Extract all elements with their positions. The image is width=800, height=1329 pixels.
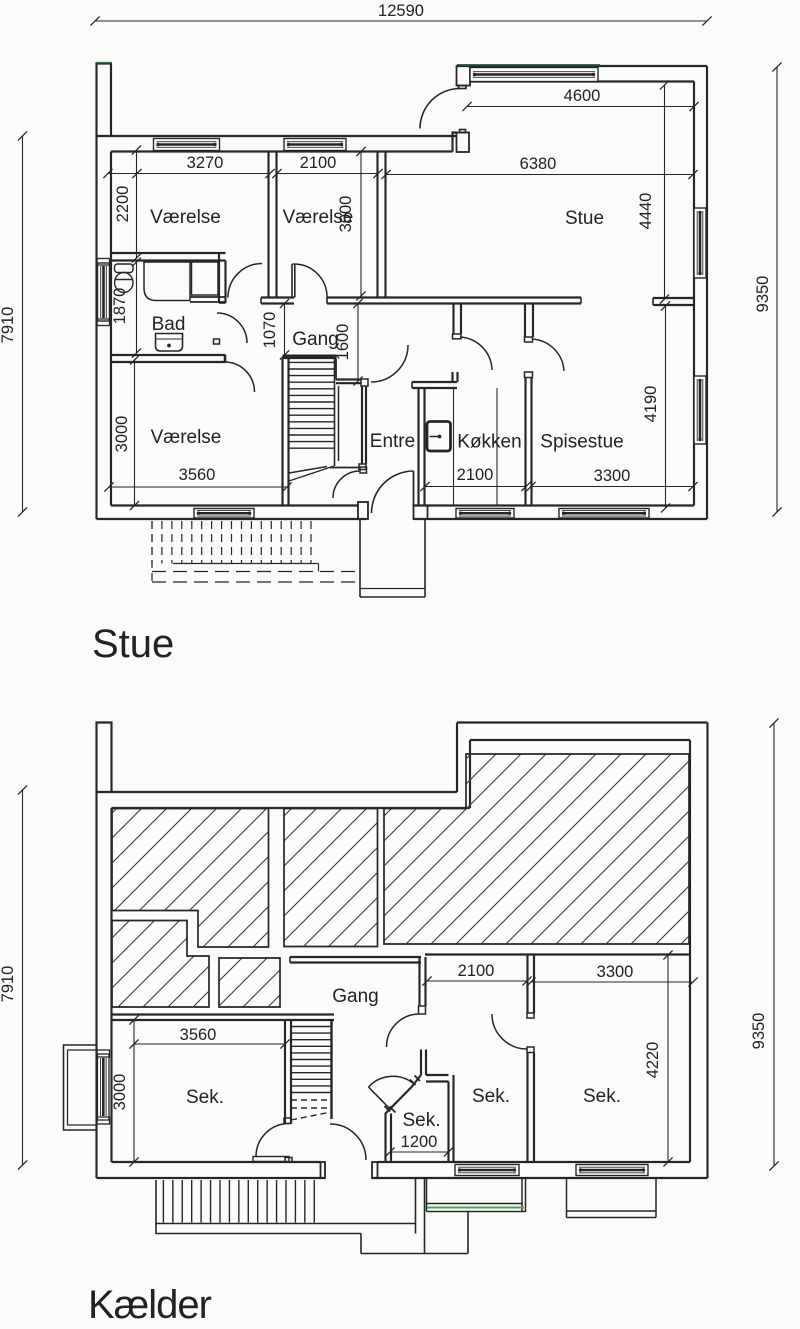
svg-text:Sek.: Sek. [583,1086,621,1107]
svg-text:Stue: Stue [565,208,604,229]
svg-text:9350: 9350 [754,276,772,313]
svg-text:Gang: Gang [292,329,338,350]
svg-text:Værelse: Værelse [283,207,354,228]
svg-text:Sek.: Sek. [186,1087,224,1108]
svg-text:7910: 7910 [0,966,17,1003]
svg-text:Bad: Bad [152,314,186,335]
svg-text:6380: 6380 [520,155,557,173]
svg-text:1200: 1200 [401,1133,438,1151]
svg-text:Gang: Gang [332,986,378,1007]
svg-text:1870: 1870 [111,288,129,325]
svg-text:Sek.: Sek. [402,1110,440,1131]
svg-text:3000: 3000 [113,416,131,453]
svg-text:7910: 7910 [0,307,17,344]
svg-text:4440: 4440 [637,193,655,230]
svg-text:Værelse: Værelse [151,427,222,448]
svg-text:1070: 1070 [261,312,279,349]
svg-text:2100: 2100 [458,962,495,980]
svg-text:Værelse: Værelse [150,207,221,228]
svg-text:2100: 2100 [457,466,494,484]
svg-text:Køkken: Køkken [457,432,521,453]
svg-text:9350: 9350 [750,1013,768,1050]
svg-text:3270: 3270 [187,154,224,172]
svg-text:3300: 3300 [594,467,631,485]
svg-text:Spisestue: Spisestue [540,432,623,453]
svg-text:Sek.: Sek. [472,1086,510,1107]
svg-text:2200: 2200 [114,186,132,223]
svg-text:3000: 3000 [111,1074,129,1111]
svg-text:3560: 3560 [180,1026,217,1044]
svg-text:4190: 4190 [642,386,660,423]
svg-text:3300: 3300 [597,963,634,981]
svg-text:2100: 2100 [300,154,337,172]
svg-text:4220: 4220 [644,1042,662,1079]
svg-text:Kælder: Kælder [88,1283,212,1327]
svg-text:Entre: Entre [370,431,415,452]
svg-text:12590: 12590 [378,2,424,20]
svg-text:Stue: Stue [92,622,174,666]
svg-text:3560: 3560 [179,466,216,484]
svg-text:4600: 4600 [564,87,601,105]
